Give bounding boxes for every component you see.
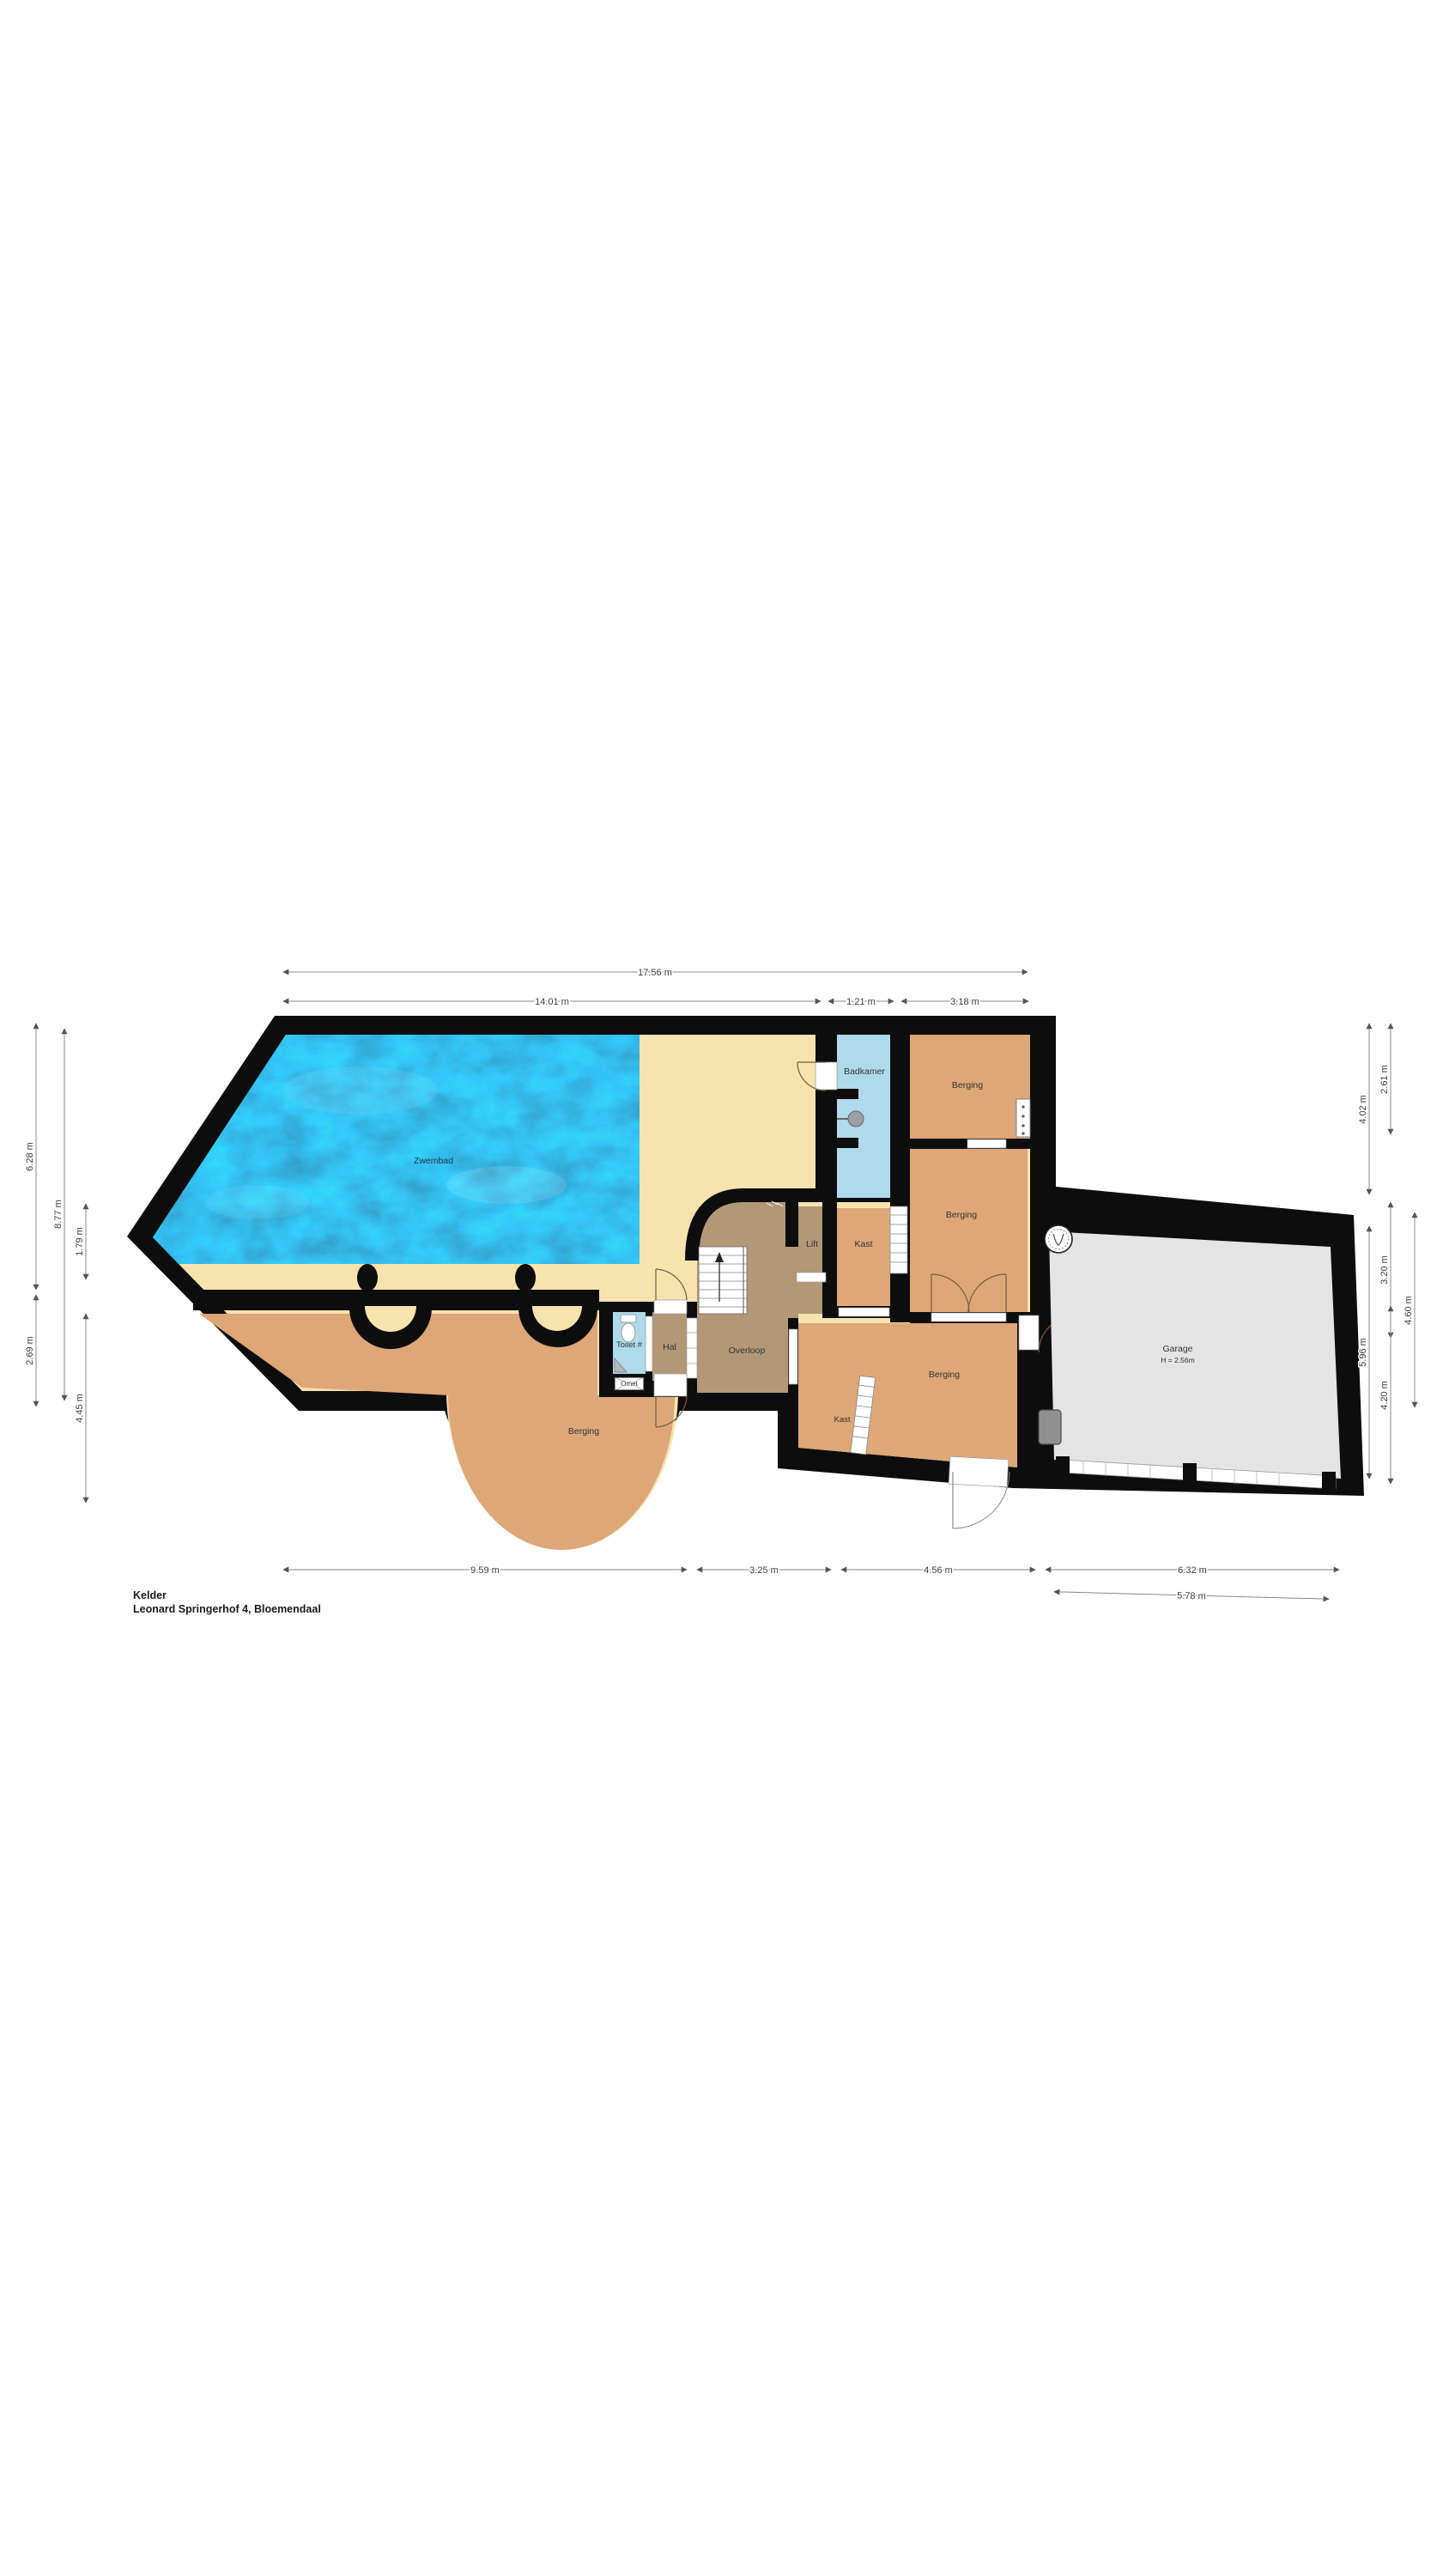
dim-pool-width: 14.01 m — [283, 997, 821, 1007]
svg-text:2.69 m: 2.69 m — [25, 1336, 35, 1365]
svg-text:9.59 m: 9.59 m — [470, 1565, 500, 1576]
dim-right-inner-top: 4.02 m — [1358, 1024, 1369, 1194]
room-storage-bottom-floor — [798, 1323, 1017, 1467]
label-garage: Garage — [1162, 1344, 1192, 1354]
dim-total-width: 17.56 m — [283, 968, 1028, 978]
label-pool: Zwembad — [414, 1156, 453, 1166]
deck-pillar — [515, 1264, 536, 1291]
svg-text:3.18 m: 3.18 m — [950, 997, 979, 1007]
ladder-icon — [890, 1206, 907, 1273]
room-garage-floor — [1049, 1231, 1341, 1479]
label-landing: Overloop — [729, 1346, 766, 1356]
svg-text:4.45 m: 4.45 m — [75, 1394, 85, 1423]
dim-bottom-right: 4.56 m — [841, 1565, 1035, 1576]
dim-left-outer-top: 6.28 m — [25, 1024, 36, 1290]
label-lift: Lift — [806, 1239, 818, 1249]
svg-text:5.78 m: 5.78 m — [1177, 1591, 1206, 1602]
svg-text:6.32 m: 6.32 m — [1178, 1565, 1207, 1576]
label-storage-bottom: Berging — [929, 1370, 960, 1380]
svg-text:6.28 m: 6.28 m — [25, 1142, 35, 1171]
svg-text:4.56 m: 4.56 m — [924, 1565, 953, 1576]
staircase — [699, 1247, 747, 1314]
svg-text:14.01 m: 14.01 m — [535, 997, 569, 1007]
storage-middle-block — [910, 1149, 1028, 1323]
title-block: Kelder Leonard Springerhof 4, Bloemendaa… — [133, 1589, 321, 1615]
label-hall: Hal — [663, 1342, 676, 1352]
svg-text:17.56 m: 17.56 m — [638, 968, 672, 978]
label-storage-middle: Berging — [946, 1210, 977, 1220]
wall-unit-icon — [1039, 1410, 1061, 1444]
dim-bath-width: 1.21 m — [828, 997, 894, 1007]
room-storage-middle-floor — [910, 1149, 1028, 1312]
svg-text:3.20 m: 3.20 m — [1379, 1255, 1390, 1285]
garage-drain-icon — [1045, 1225, 1072, 1253]
dim-bottom-garage-inner: 5.78 m — [1054, 1588, 1329, 1605]
deck-pillar — [357, 1264, 378, 1291]
dim-storage-width: 3.18 m — [901, 997, 1028, 1007]
label-storage-top-right: Berging — [952, 1080, 983, 1091]
svg-text:2.61 m: 2.61 m — [1379, 1065, 1390, 1094]
svg-text:4.02 m: 4.02 m — [1358, 1095, 1368, 1124]
dim-right-mid-middle: 3.20 m — [1379, 1202, 1391, 1338]
dim-left-outer-bottom: 2.69 m — [25, 1295, 36, 1406]
dim-left-inner-top: 1.79 m — [75, 1204, 86, 1279]
radiator-icon — [1016, 1099, 1030, 1137]
svg-text:1.21 m: 1.21 m — [846, 997, 876, 1007]
label-bathroom: Badkamer — [844, 1066, 885, 1077]
floor-plan-canvas: Omet — [0, 0, 1449, 2576]
dim-right-mid-top: 2.61 m — [1379, 1024, 1391, 1134]
plan-title-address: Leonard Springerhof 4, Bloemendaal — [133, 1603, 321, 1615]
label-closet-top: Kast — [854, 1239, 872, 1249]
fixture-box: Omet — [615, 1377, 644, 1390]
swimming-pool — [137, 1022, 652, 1279]
svg-text:5.96 m: 5.96 m — [1358, 1338, 1368, 1367]
entrance-door — [949, 1456, 1009, 1528]
svg-text:3.25 m: 3.25 m — [749, 1565, 779, 1576]
dim-bottom-left: 9.59 m — [283, 1565, 687, 1576]
svg-text:1.79 m: 1.79 m — [75, 1227, 85, 1256]
dim-right-mid-bottom: 4.20 m — [1379, 1306, 1391, 1484]
fixture-box-label: Omet — [621, 1380, 638, 1388]
svg-text:4.20 m: 4.20 m — [1379, 1381, 1390, 1410]
label-closet-bottom: Kast — [834, 1415, 850, 1425]
dim-bottom-center: 3.25 m — [697, 1565, 831, 1576]
plan-title-floor: Kelder — [133, 1589, 167, 1601]
label-toilet: Toilet # — [616, 1340, 643, 1350]
label-garage-height: H = 2.56m — [1161, 1356, 1194, 1364]
dim-bottom-garage: 6.32 m — [1046, 1565, 1339, 1576]
dim-left-inner-bottom: 4.45 m — [75, 1314, 86, 1503]
room-closet-top-floor — [837, 1208, 890, 1308]
svg-text:4.60 m: 4.60 m — [1404, 1296, 1414, 1325]
svg-text:8.77 m: 8.77 m — [53, 1200, 64, 1229]
label-storage-left: Berging — [568, 1426, 599, 1437]
toilet-icon — [621, 1315, 636, 1342]
dim-left-mid: 8.77 m — [53, 1029, 64, 1400]
dim-right-outer: 4.60 m — [1404, 1212, 1415, 1407]
